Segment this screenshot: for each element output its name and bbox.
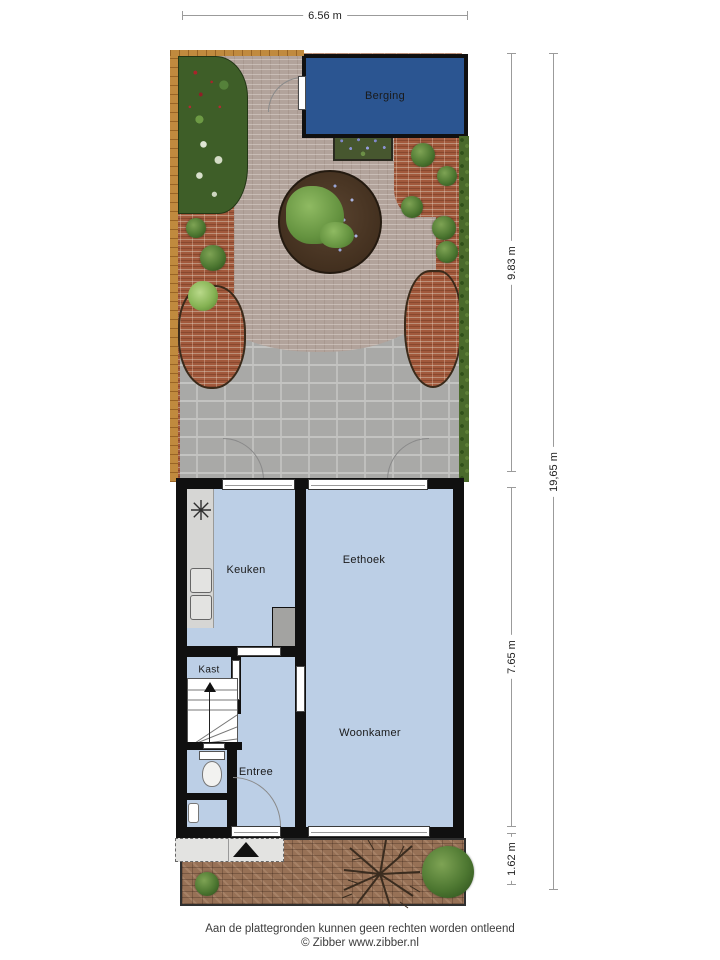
fence-left [170,50,178,482]
room-label-kast: Kast [198,665,219,676]
front-door [231,826,281,837]
toilet-tank [199,751,225,760]
room-label-berging: Berging [365,90,405,102]
dimension-total-depth-label: 19,65 m [547,447,561,497]
garden-bush [437,166,457,186]
footer: Aan de plattegronden kunnen geen rechten… [0,922,720,950]
porch-divider [228,839,229,861]
garden-bush [436,241,458,263]
dimension-front-yard-depth-label: 1.62 m [505,837,519,881]
dimension-front-yard-depth: 1.62 m [511,833,512,885]
dimension-garden-depth-label: 9.83 m [505,241,519,285]
dimension-garden-depth: 9.83 m [511,53,512,472]
kitchen-sink [190,595,212,620]
wall-toilet-bottom [187,793,237,800]
house: Keuken Eethoek Kast Entree Woonkamer [176,478,464,838]
footer-disclaimer: Aan de plattegronden kunnen geen rechten… [0,922,720,936]
wall-keuken-eethoek [295,489,306,827]
front-yard-bush-large [422,846,474,898]
berging-door [298,76,306,110]
planter-shrub-small [320,222,354,248]
room-label-woonkamer: Woonkamer [339,727,401,739]
dimension-top-width-label: 6.56 m [303,9,347,23]
kitchen-sink [190,568,212,593]
garden: Berging [170,50,470,482]
garden-bush [401,196,423,218]
front-yard-bush-small [195,872,219,896]
dimension-house-depth-label: 7.65 m [505,635,519,679]
door-hal-woonkamer [296,666,305,712]
toilet-bowl [202,761,222,787]
stove-icon [190,499,212,521]
garden-door-keuken [222,479,295,490]
bare-tree [330,832,430,912]
fence-top [170,50,304,56]
doorway-keuken-hal [237,647,281,656]
stairs-direction-arrow-icon [204,682,216,692]
room-label-keuken: Keuken [226,564,265,576]
room-label-eethoek: Eethoek [343,554,385,566]
spiky-plant [188,281,218,311]
flower-bed-left [178,56,248,214]
washbasin [188,803,199,823]
garden-bush [411,143,435,167]
hedge-right [459,136,469,482]
garden-bush [186,218,206,238]
footer-copyright: © Zibber www.zibber.nl [0,936,720,950]
entrance-arrow-icon [233,842,259,857]
stairs-arrow-stem [209,692,210,742]
garden-bush [432,216,456,240]
brick-mound-right [404,270,462,388]
dimension-total-depth: 19,65 m [553,53,554,890]
entrance-porch [175,838,284,862]
dimension-top-width: 6.56 m [182,15,468,16]
room-label-entree: Entree [239,766,273,778]
garden-door-eethoek [308,479,428,490]
floorplan-canvas: Berging [0,0,720,960]
dimension-house-depth: 7.65 m [511,487,512,827]
garden-bush [200,245,226,271]
door-toilet [203,743,225,749]
